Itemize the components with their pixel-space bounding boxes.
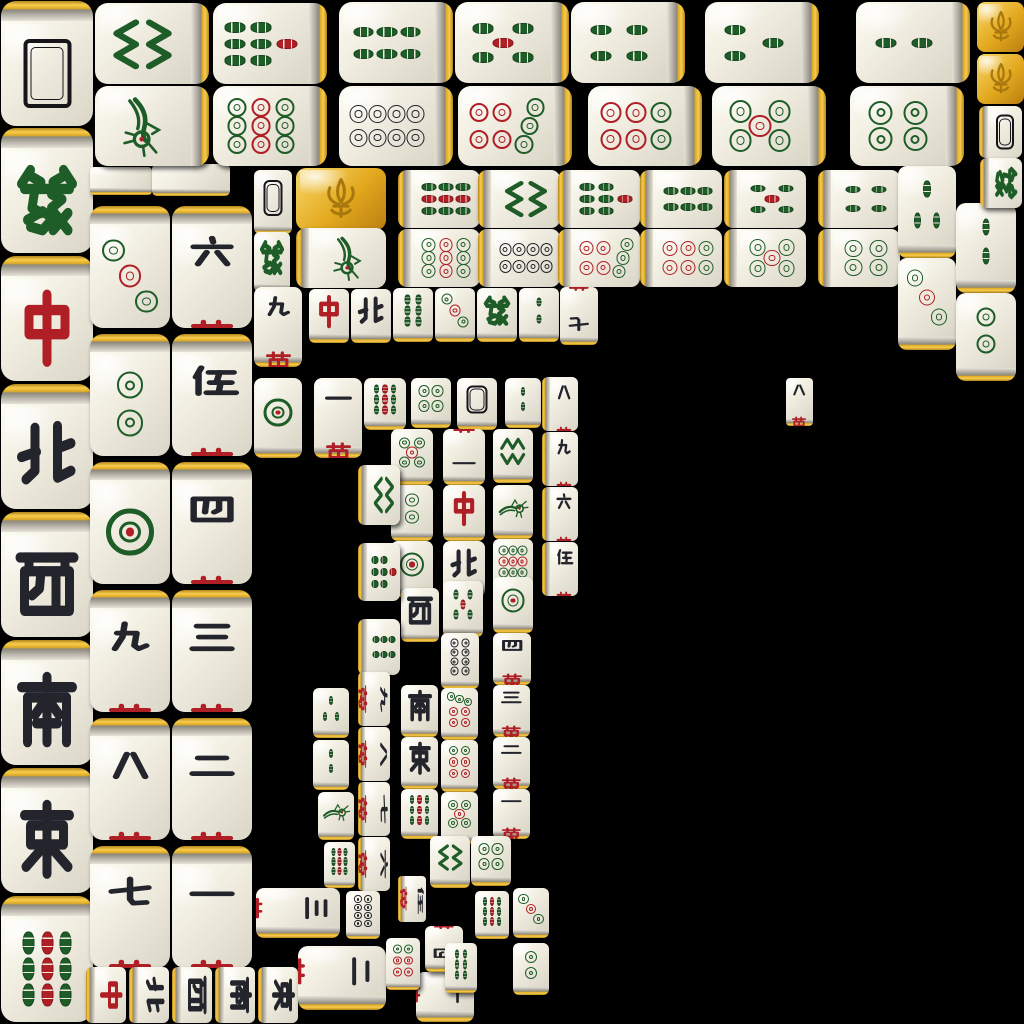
tile-circle-9[interactable]: [398, 229, 480, 287]
tile-bamboo-9[interactable]: [324, 842, 355, 888]
circle-dot-icon: [441, 294, 452, 305]
tile-character-8[interactable]: [90, 718, 170, 840]
tile-circle-3[interactable]: [513, 888, 549, 938]
circle-3-face: [516, 892, 546, 926]
tile-face: [386, 938, 420, 983]
tile-face-content: [407, 880, 424, 918]
tile-face-content: [991, 111, 1019, 154]
tile-circle-7[interactable]: [441, 688, 478, 740]
tile-character-4[interactable]: [172, 462, 252, 584]
circle-dot-icon: [596, 261, 610, 275]
character-4-face: [497, 637, 528, 673]
west-wind-face: [10, 542, 85, 628]
tile-character-1[interactable]: [443, 429, 485, 485]
wan-glyph-icon: [185, 703, 239, 713]
tile-west-wind[interactable]: [401, 588, 439, 642]
tile-north-wind[interactable]: [351, 289, 391, 343]
tile-face: [898, 258, 956, 337]
bamboo-stick-icon: [490, 917, 494, 926]
tile-bamboo-2[interactable]: [519, 288, 559, 342]
tile-face-content: [981, 59, 1020, 100]
tile-character-7[interactable]: [358, 782, 390, 836]
bamboo-stick-icon: [680, 203, 695, 211]
circle-dot-icon: [508, 557, 518, 567]
circle-dot-icon: [904, 127, 928, 151]
east-wind-face: [270, 972, 295, 1018]
circle-dot-icon: [461, 707, 470, 716]
circle-dot-icon: [626, 129, 647, 150]
tile-bamboo-5[interactable]: [443, 581, 483, 637]
tile-character-1[interactable]: [172, 846, 252, 968]
bamboo-stick-icon: [329, 764, 334, 773]
tile-circle-6[interactable]: [386, 938, 420, 990]
tile-flower-gold[interactable]: [977, 2, 1024, 52]
tile-face-content: [97, 874, 163, 959]
tile-red-dragon[interactable]: [309, 289, 349, 343]
tile-gold-edge: [398, 229, 411, 287]
tile-north-wind[interactable]: [129, 967, 169, 1023]
circle-1-face: [395, 545, 429, 584]
tile-face: [339, 86, 435, 166]
tile-face-content: [10, 414, 85, 500]
circle-dot-icon: [461, 718, 470, 727]
bamboo-stick-icon: [697, 187, 712, 195]
tile-bamboo-2[interactable]: [505, 378, 541, 428]
tile-face: [712, 86, 808, 166]
tile-east-wind[interactable]: [1, 768, 93, 893]
tile-bamboo-1[interactable]: [493, 485, 533, 539]
tile-south-wind[interactable]: [215, 967, 255, 1023]
tile-bamboo-9[interactable]: [1, 896, 93, 1022]
tile-face-content: [417, 175, 474, 223]
bamboo-stick-icon: [353, 26, 374, 37]
tile-circle-4[interactable]: [411, 378, 451, 428]
tile-circle-4[interactable]: [818, 229, 900, 287]
circle-dot-icon: [458, 316, 469, 327]
tile-face: [364, 378, 406, 421]
tile-face-content: [316, 692, 346, 726]
circle-dot-icon: [117, 409, 144, 436]
tile-face-content: [104, 11, 183, 77]
tile-face: [491, 229, 560, 287]
circle-dot-icon: [651, 129, 672, 150]
tile-character-6[interactable]: [172, 206, 252, 328]
tile-bamboo-1[interactable]: [95, 86, 209, 166]
tile-circle-6[interactable]: [640, 229, 722, 287]
east-wind-face: [405, 741, 435, 777]
tile-face-content: [516, 947, 546, 983]
circle-dot-icon: [450, 648, 458, 656]
tile-face-content: [98, 972, 123, 1018]
circle-dot-icon: [769, 100, 791, 122]
circle-dot-icon: [275, 135, 294, 154]
bamboo-stick-icon: [60, 984, 72, 1007]
tile-back-frame-icon: [466, 386, 487, 414]
flower-gold-face: [981, 7, 1020, 48]
bamboo-stick-icon: [377, 26, 398, 37]
tile-gold-edge: [318, 832, 354, 840]
bamboo-stick-icon: [331, 857, 335, 865]
tile-bamboo-2[interactable]: [313, 740, 349, 790]
bamboo-stick-icon: [374, 395, 379, 404]
tile-bamboo-7[interactable]: [558, 170, 640, 228]
tile-bamboo-6[interactable]: [358, 619, 400, 675]
tile-circle-7[interactable]: [458, 86, 572, 166]
tile-tile-back[interactable]: [1, 1, 93, 126]
tile-bamboo-8[interactable]: [358, 465, 400, 525]
bamboo-9-face: [10, 926, 85, 1013]
tile-edge-face: [96, 169, 147, 186]
circle-dot-icon: [869, 259, 886, 276]
bei-glyph-icon: [447, 545, 481, 584]
tile-tile-back[interactable]: [457, 378, 497, 430]
bamboo-5-face: [464, 10, 543, 76]
tile-gold-edge: [391, 532, 433, 541]
tile-gold-edge: [443, 476, 485, 485]
tile-circle-1[interactable]: [493, 577, 533, 633]
circle-2-face: [962, 300, 1011, 361]
tile-gold-edge: [90, 334, 170, 352]
tile-circle-6[interactable]: [588, 86, 702, 166]
tile-green-dragon[interactable]: [477, 288, 517, 342]
tile-face: [213, 86, 309, 166]
tile-face-content: [439, 292, 472, 329]
tile-face-content: [10, 798, 85, 884]
tile-green-dragon[interactable]: [980, 158, 1022, 208]
circle-dot-icon: [135, 290, 157, 312]
tile-face-content: [389, 942, 417, 979]
tile-gold-edge: [256, 927, 340, 938]
bamboo-stick-icon: [338, 848, 342, 856]
circle-5-face: [721, 93, 800, 159]
tile-character-5[interactable]: [542, 542, 578, 596]
tile-bamboo-6[interactable]: [339, 2, 453, 83]
tile-face: [550, 487, 578, 541]
bamboo-stick-icon: [914, 212, 922, 229]
circle-dot-icon: [464, 698, 472, 706]
circle-dot-icon: [455, 695, 463, 703]
bamboo-stick-icon: [22, 984, 34, 1007]
ba-glyph-icon: [555, 382, 574, 402]
tile-face-content: [313, 293, 346, 330]
tile-character-3[interactable]: [172, 590, 252, 712]
tile-face-content: [553, 547, 576, 591]
south-wind-face: [227, 972, 252, 1018]
tile-gold-edge: [313, 782, 349, 790]
circle-dot-icon: [869, 240, 886, 257]
tile-gold-edge: [493, 474, 533, 483]
tile-face-content: [461, 382, 494, 417]
tile-south-wind[interactable]: [401, 685, 438, 737]
circle-dot-icon: [499, 260, 512, 273]
tile-circle-6[interactable]: [441, 740, 478, 792]
bamboo-4-face: [837, 175, 894, 223]
tile-circle-3[interactable]: [90, 206, 170, 328]
bamboo-stick-icon: [41, 984, 53, 1007]
south-wind-face: [10, 670, 85, 756]
bamboo-stick-icon: [225, 38, 246, 49]
bamboo-1-bird-icon: [321, 796, 351, 829]
tile-circle-2[interactable]: [90, 334, 170, 456]
tile-character-9[interactable]: [358, 672, 390, 726]
bamboo-stick-icon: [60, 958, 72, 981]
tile-character-9[interactable]: [90, 590, 170, 712]
bamboo-5-face: [447, 585, 480, 624]
tile-bamboo-8[interactable]: [478, 170, 560, 228]
tile-bamboo-7[interactable]: [213, 3, 327, 84]
tile-face-content: [184, 972, 209, 1018]
tile-bamboo-7[interactable]: [358, 543, 400, 601]
liu-glyph-icon: [378, 846, 388, 882]
circle-3-face: [903, 265, 951, 330]
tile-flower-gold[interactable]: [296, 168, 386, 230]
tile-character-9[interactable]: [542, 432, 578, 486]
tile-face-content: [865, 10, 944, 76]
tile-character-6[interactable]: [542, 487, 578, 541]
tile-character-1[interactable]: [314, 378, 362, 458]
tile-bamboo-1[interactable]: [318, 792, 354, 840]
tile-face: [435, 288, 475, 333]
tile-gold-edge: [254, 447, 302, 458]
tile-face-content: [445, 744, 475, 780]
bamboo-stick-icon: [455, 207, 470, 215]
tile-red-dragon[interactable]: [443, 485, 485, 541]
tile-character-3[interactable]: [256, 888, 340, 938]
tile-circle-9[interactable]: [213, 86, 327, 166]
tile-circle-2[interactable]: [513, 943, 549, 995]
tile-character-6[interactable]: [358, 837, 390, 891]
bamboo-stick-icon: [41, 958, 53, 981]
bamboo-stick-icon: [417, 816, 422, 825]
tile-circle-8[interactable]: [441, 633, 479, 689]
tile-character-3[interactable]: [493, 685, 530, 737]
tile-face-content: [316, 234, 379, 283]
tile-bamboo-6[interactable]: [393, 288, 433, 342]
tile-circle-2[interactable]: [956, 293, 1016, 381]
tile-face: [313, 688, 349, 730]
tile-bamboo-9[interactable]: [475, 891, 509, 939]
tile-face: [493, 485, 533, 530]
bamboo-stick-icon: [331, 867, 335, 875]
tile-gold-edge: [358, 619, 367, 675]
tile-character-9[interactable]: [254, 287, 302, 367]
bamboo-stick-icon: [380, 580, 387, 588]
tile-character-8[interactable]: [358, 727, 390, 781]
tile-bamboo-4[interactable]: [818, 170, 900, 228]
tile-character-7[interactable]: [90, 846, 170, 968]
tile-circle-5[interactable]: [724, 229, 806, 287]
tile-tile-back[interactable]: [254, 170, 292, 234]
circle-8-face: [497, 234, 554, 282]
tile-green-dragon[interactable]: [254, 232, 290, 292]
bamboo-stick-icon: [663, 203, 678, 211]
tile-character-2[interactable]: [172, 718, 252, 840]
tile-gold-edge: [386, 983, 420, 990]
tile-west-wind[interactable]: [172, 967, 212, 1023]
circle-dot-icon: [404, 956, 413, 965]
tile-circle-8[interactable]: [478, 229, 560, 287]
bamboo-stick-icon: [764, 195, 779, 203]
wan-glyph-icon: [399, 883, 408, 914]
circle-dot-icon: [350, 129, 368, 147]
tile-gold-edge: [86, 967, 95, 1023]
tile-bamboo-1[interactable]: [296, 228, 386, 288]
tile-south-wind[interactable]: [1, 640, 93, 765]
tile-circle-4[interactable]: [471, 836, 511, 886]
tile-circle-8[interactable]: [346, 891, 380, 939]
tile-character-2[interactable]: [298, 946, 386, 1010]
tile-circle-3[interactable]: [435, 288, 475, 342]
tile-face: [314, 378, 362, 447]
bamboo-4-face: [580, 10, 659, 76]
tile-character-5[interactable]: [172, 334, 252, 456]
tile-gold-edge: [1, 896, 93, 916]
tile-bamboo-4[interactable]: [571, 2, 685, 83]
bamboo-stick-icon: [750, 206, 765, 214]
tile-face-content: [508, 382, 538, 416]
circle-dot-icon: [749, 239, 765, 255]
tile-face: [831, 170, 900, 228]
tile-face-content: [319, 384, 358, 441]
circle-9-face: [497, 543, 530, 580]
bamboo-stick-icon: [455, 970, 459, 979]
tile-face-content: [445, 638, 476, 677]
tile-east-wind[interactable]: [401, 737, 438, 789]
tile-bamboo-8[interactable]: [493, 429, 533, 483]
bamboo-stick-icon: [251, 22, 272, 33]
tile-character-5[interactable]: [398, 876, 426, 922]
character-1-face: [179, 874, 245, 959]
tile-face-content: [516, 892, 546, 926]
tile-green-dragon[interactable]: [1, 128, 93, 253]
tile-bamboo-8[interactable]: [430, 836, 470, 888]
bamboo-stick-icon: [455, 183, 470, 191]
tile-circle-3[interactable]: [898, 258, 956, 350]
tile-tile-edge[interactable]: [152, 164, 230, 196]
circle-dot-icon: [454, 809, 464, 819]
tile-bamboo-6[interactable]: [445, 943, 477, 993]
tile-bamboo-3[interactable]: [898, 166, 956, 258]
tile-circle-1[interactable]: [90, 462, 170, 584]
tile-bamboo-9[interactable]: [364, 378, 406, 430]
tile-face-content: [789, 382, 811, 416]
tile-bamboo-9[interactable]: [398, 170, 480, 228]
tile-face-content: [743, 175, 800, 223]
tile-character-4[interactable]: [493, 633, 531, 685]
circle-dot-icon: [117, 372, 144, 399]
tile-tile-back[interactable]: [979, 106, 1022, 158]
tile-bamboo-5[interactable]: [455, 2, 569, 83]
tile-face: [898, 166, 956, 245]
tile-face-content: [553, 492, 576, 536]
tile-character-2[interactable]: [493, 737, 530, 789]
tile-bamboo-2[interactable]: [956, 203, 1016, 293]
circle-dot-icon: [400, 552, 424, 576]
tile-bamboo-3[interactable]: [313, 688, 349, 738]
bamboo-9-face: [368, 382, 402, 417]
tile-gold-edge: [478, 170, 491, 228]
tile-gold-edge: [542, 542, 550, 596]
tile-circle-8[interactable]: [339, 86, 453, 166]
tile-bamboo-3[interactable]: [705, 2, 819, 83]
north-wind-face: [447, 545, 481, 584]
bamboo-stick-icon: [417, 795, 422, 804]
character-7-face: [564, 292, 595, 333]
tile-face: [181, 967, 212, 1023]
bamboo-7-face: [577, 175, 634, 223]
tile-face: [152, 164, 230, 189]
bamboo-stick-icon: [871, 186, 886, 194]
tile-red-dragon[interactable]: [1, 256, 93, 381]
tile-face-content: [368, 382, 402, 417]
tile-circle-1[interactable]: [254, 378, 302, 458]
bamboo-stick-icon: [497, 897, 501, 906]
jiu-glyph-icon: [378, 681, 388, 717]
tile-face-content: [523, 292, 556, 329]
circle-8-face: [445, 638, 476, 677]
tile-bamboo-6[interactable]: [640, 170, 722, 228]
circle-dot-icon: [354, 920, 362, 928]
tile-bamboo-5[interactable]: [724, 170, 806, 228]
tile-face: [90, 736, 170, 840]
tile-tile-edge[interactable]: [90, 167, 152, 195]
tile-red-dragon[interactable]: [86, 967, 126, 1023]
tile-gold-edge: [172, 590, 252, 608]
wan-glyph-icon: [555, 426, 574, 431]
tile-face: [513, 888, 549, 930]
tile-gold-edge: [477, 333, 517, 342]
circle-dot-icon: [364, 912, 372, 920]
bamboo-stick-icon: [371, 556, 378, 564]
tile-bamboo-9[interactable]: [401, 789, 438, 839]
tile-gold-edge: [398, 170, 411, 228]
tile-gold-edge: [346, 932, 380, 939]
circle-dot-icon: [414, 457, 425, 468]
tile-face-content: [962, 300, 1011, 361]
circle-dot-icon: [264, 398, 292, 426]
tile-character-1[interactable]: [493, 789, 530, 839]
circle-dot-icon: [388, 105, 406, 123]
tile-east-wind[interactable]: [258, 967, 298, 1023]
bamboo-stick-icon: [377, 48, 398, 59]
tile-bamboo-2[interactable]: [856, 2, 970, 83]
bamboo-1-face: [321, 796, 351, 829]
tile-circle-5[interactable]: [712, 86, 826, 166]
tile-west-wind[interactable]: [1, 512, 93, 637]
bamboo-stick-icon: [416, 295, 421, 305]
character-6-face: [367, 842, 388, 886]
tile-face-content: [481, 292, 514, 329]
bamboo-stick-icon: [425, 816, 430, 825]
tile-face: [571, 229, 640, 287]
tile-bamboo-8[interactable]: [95, 3, 209, 84]
tile-face-content: [367, 842, 388, 886]
tile-character-8[interactable]: [542, 377, 578, 431]
bamboo-stick-icon: [579, 195, 594, 203]
tile-face-content: [564, 292, 595, 333]
tile-face: [296, 168, 386, 230]
bamboo-stick-icon: [225, 22, 246, 33]
bamboo-8-face: [370, 471, 397, 520]
tile-character-8[interactable]: [786, 378, 813, 426]
tile-character-7[interactable]: [560, 287, 598, 345]
tile-circle-7[interactable]: [558, 229, 640, 287]
tile-north-wind[interactable]: [1, 384, 93, 509]
circle-dot-icon: [976, 334, 996, 354]
tile-face-content: [597, 93, 676, 159]
tile-flower-gold[interactable]: [977, 54, 1024, 104]
tile-circle-4[interactable]: [850, 86, 964, 166]
